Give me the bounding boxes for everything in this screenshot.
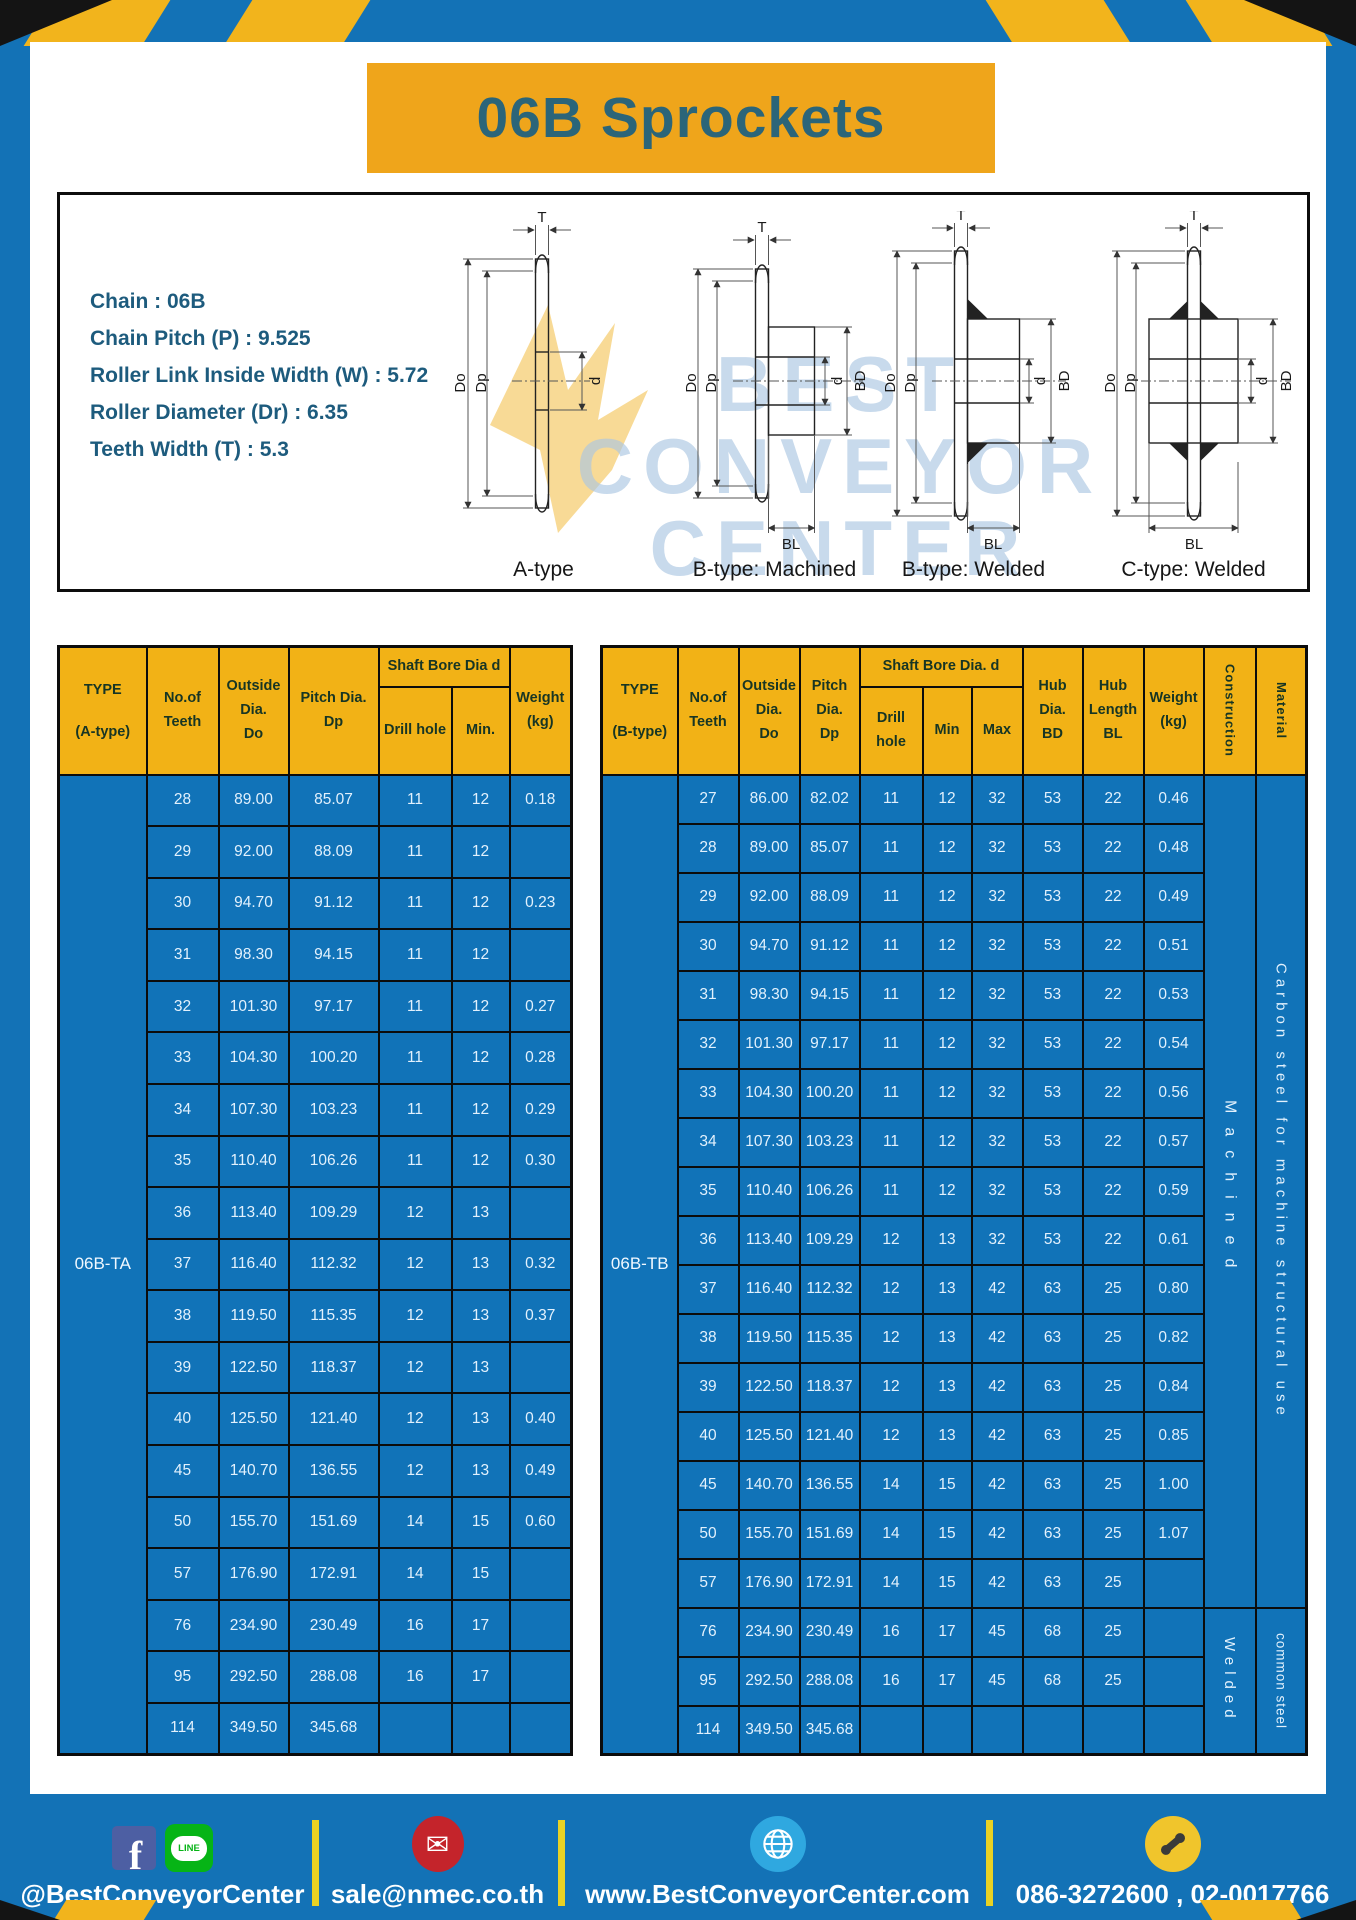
- dim-label-d: d: [829, 377, 846, 385]
- table-cell: 98.30: [739, 971, 800, 1020]
- social-icons: f LINE: [112, 1824, 213, 1872]
- table-cell: 349.50: [739, 1706, 800, 1755]
- table-cell: [1144, 1706, 1204, 1755]
- table-cell: 14: [379, 1497, 452, 1549]
- table-cell: 110.40: [739, 1167, 800, 1216]
- table-cell: [510, 1548, 572, 1600]
- table-cell: 53: [1023, 873, 1083, 922]
- table-row: 35110.40106.2611123253220.59: [602, 1167, 1307, 1216]
- col-header-hub-length: Hub Length BL: [1083, 647, 1144, 775]
- table-cell: 11: [379, 1084, 452, 1136]
- hazard-stripe: [986, 0, 1133, 46]
- drawing-label: C-type: Welded: [1086, 558, 1301, 582]
- material-cell: Carbon steel for machine structural use: [1256, 775, 1307, 1608]
- table-cell: 0.29: [510, 1084, 572, 1136]
- table-a-header-row: TYPE (A-type) No.of Teeth Outside Dia. D…: [59, 647, 572, 687]
- table-cell: 0.54: [1144, 1020, 1204, 1069]
- table-cell: 122.50: [219, 1342, 289, 1394]
- table-cell: 121.40: [800, 1412, 860, 1461]
- dim-label-t: T: [757, 219, 766, 236]
- table-cell: 82.02: [800, 775, 860, 824]
- table-cell: 11: [860, 873, 923, 922]
- table-cell: 63: [1023, 1559, 1083, 1608]
- table-cell: 63: [1023, 1510, 1083, 1559]
- table-cell: 12: [379, 1290, 452, 1342]
- table-cell: 14: [860, 1510, 923, 1559]
- table-cell: 32: [972, 1069, 1023, 1118]
- table-cell: 13: [452, 1342, 510, 1394]
- table-cell: 13: [923, 1265, 972, 1314]
- table-cell: 17: [923, 1657, 972, 1706]
- table-cell: 53: [1023, 1167, 1083, 1216]
- table-cell: 12: [452, 826, 510, 878]
- table-cell: 11: [860, 1118, 923, 1167]
- table-cell: 39: [147, 1342, 219, 1394]
- dim-label-do: Do: [452, 373, 469, 392]
- table-cell: 112.32: [289, 1239, 379, 1291]
- footer-phone-group: 086-3272600 , 02-0017766: [1000, 1816, 1345, 1910]
- table-cell: [1144, 1559, 1204, 1608]
- table-cell: 349.50: [219, 1703, 289, 1755]
- col-header-drill-hole: Drill hole: [860, 687, 923, 775]
- table-cell: 91.12: [289, 878, 379, 930]
- email-address: sale@nmec.co.th: [331, 1879, 544, 1910]
- col-header-min: Min.: [452, 687, 510, 775]
- dim-label-dp: Dp: [902, 373, 919, 392]
- hazard-stripe: [54, 1900, 156, 1920]
- table-cell: 13: [452, 1239, 510, 1291]
- table-cell: 94.15: [800, 971, 860, 1020]
- table-cell: 103.23: [289, 1084, 379, 1136]
- table-cell: 30: [678, 922, 739, 971]
- table-cell: 94.15: [289, 929, 379, 981]
- table-cell: 114: [678, 1706, 739, 1755]
- table-cell: 234.90: [739, 1608, 800, 1657]
- table-cell: [1023, 1706, 1083, 1755]
- table-cell: [510, 1187, 572, 1239]
- table-cell: 140.70: [219, 1445, 289, 1497]
- facebook-icon: f: [112, 1826, 156, 1870]
- table-cell: 12: [379, 1342, 452, 1394]
- table-cell: 0.30: [510, 1136, 572, 1188]
- col-header-teeth: No.of Teeth: [678, 647, 739, 775]
- table-cell: 22: [1083, 824, 1144, 873]
- table-cell: 94.70: [219, 878, 289, 930]
- table-cell: [1144, 1657, 1204, 1706]
- table-cell: 116.40: [219, 1239, 289, 1291]
- spec-tables: TYPE (A-type) No.of Teeth Outside Dia. D…: [57, 645, 1308, 1756]
- table-cell: 11: [860, 775, 923, 824]
- table-row: 34107.30103.2311123253220.57: [602, 1118, 1307, 1167]
- table-cell: 32: [147, 981, 219, 1033]
- col-header-max: Max: [972, 687, 1023, 775]
- dim-label-dp: Dp: [703, 373, 720, 392]
- title-banner: 06B Sprockets: [367, 63, 995, 173]
- table-cell: 345.68: [800, 1706, 860, 1755]
- table-cell: 42: [972, 1559, 1023, 1608]
- table-cell: 28: [678, 824, 739, 873]
- dim-label-bl: BL: [1185, 536, 1203, 553]
- table-cell: 0.60: [510, 1497, 572, 1549]
- table-cell: 12: [379, 1239, 452, 1291]
- table-cell: 38: [678, 1314, 739, 1363]
- table-cell: 34: [678, 1118, 739, 1167]
- table-cell: 22: [1083, 1118, 1144, 1167]
- table-cell: 32: [972, 873, 1023, 922]
- table-cell: 13: [452, 1393, 510, 1445]
- table-cell: 11: [860, 1069, 923, 1118]
- table-cell: [510, 1600, 572, 1652]
- dim-label-bl: BL: [782, 536, 800, 553]
- table-cell: 12: [923, 971, 972, 1020]
- table-cell: 88.09: [289, 826, 379, 878]
- table-cell: 12: [379, 1187, 452, 1239]
- line-badge: LINE: [171, 1836, 207, 1861]
- spec-line: Roller Diameter (Dr) : 6.35: [90, 394, 428, 431]
- table-cell: 114: [147, 1703, 219, 1755]
- table-row: 2889.0085.0711123253220.48: [602, 824, 1307, 873]
- table-cell: 1.07: [1144, 1510, 1204, 1559]
- table-cell: 0.48: [1144, 824, 1204, 873]
- table-cell: [972, 1706, 1023, 1755]
- col-header-teeth: No.of Teeth: [147, 647, 219, 775]
- col-header-material: Material: [1256, 647, 1307, 775]
- table-cell: 22: [1083, 1069, 1144, 1118]
- table-cell: 0.49: [1144, 873, 1204, 922]
- table-cell: 155.70: [219, 1497, 289, 1549]
- table-cell: 109.29: [800, 1216, 860, 1265]
- table-cell: 136.55: [289, 1445, 379, 1497]
- table-cell: 34: [147, 1084, 219, 1136]
- table-cell: 53: [1023, 824, 1083, 873]
- sprocket-drawing-b-machined: T Do Dp d BD BL B-type: Machined: [667, 211, 882, 582]
- col-header-shaft-bore: Shaft Bore Dia. d: [860, 647, 1023, 687]
- table-cell: 107.30: [219, 1084, 289, 1136]
- table-cell: 97.17: [289, 981, 379, 1033]
- table-cell: 12: [860, 1363, 923, 1412]
- table-cell: 12: [923, 1020, 972, 1069]
- table-cell: 172.91: [800, 1559, 860, 1608]
- table-cell: 12: [452, 981, 510, 1033]
- table-row: 50155.70151.6914154263251.07: [602, 1510, 1307, 1559]
- table-cell: 0.59: [1144, 1167, 1204, 1216]
- table-row: 76234.90230.491617456825Weldedcommon ste…: [602, 1608, 1307, 1657]
- table-cell: 12: [379, 1445, 452, 1497]
- footer-email-group: ✉ sale@nmec.co.th: [330, 1816, 545, 1910]
- dim-label-dp: Dp: [1122, 373, 1139, 392]
- table-cell: 0.28: [510, 1032, 572, 1084]
- table-cell: 22: [1083, 873, 1144, 922]
- table-row: 2992.0088.0911123253220.49: [602, 873, 1307, 922]
- table-cell: 11: [379, 1136, 452, 1188]
- dim-label-t: T: [956, 211, 965, 224]
- table-cell: 25: [1083, 1265, 1144, 1314]
- table-cell: 13: [923, 1412, 972, 1461]
- table-cell: [510, 929, 572, 981]
- table-cell: 30: [147, 878, 219, 930]
- content-page: 06B Sprockets BEST CONVEYOR CENTER Chain…: [30, 42, 1326, 1794]
- table-row: 114349.50345.68: [602, 1706, 1307, 1755]
- table-cell: 11: [379, 878, 452, 930]
- table-row: 39122.50118.3712134263250.84: [602, 1363, 1307, 1412]
- table-cell: 140.70: [739, 1461, 800, 1510]
- table-cell: 11: [860, 824, 923, 873]
- dim-label-bd: BD: [1278, 370, 1295, 391]
- table-cell: 113.40: [219, 1187, 289, 1239]
- table-cell: 57: [678, 1559, 739, 1608]
- col-header-type: TYPE (B-type): [602, 647, 678, 775]
- col-header-min: Min: [923, 687, 972, 775]
- sprocket-drawing-b-welded: T Do Dp d BD BL B-type: Welded: [866, 211, 1081, 582]
- table-cell: 32: [972, 824, 1023, 873]
- globe-icon: [750, 1816, 806, 1872]
- table-cell: 86.00: [739, 775, 800, 824]
- table-cell: 42: [972, 1265, 1023, 1314]
- table-cell: 0.82: [1144, 1314, 1204, 1363]
- dim-label-t: T: [537, 211, 546, 226]
- table-cell: 63: [1023, 1461, 1083, 1510]
- table-cell: 91.12: [800, 922, 860, 971]
- table-cell: 63: [1023, 1314, 1083, 1363]
- table-cell: [860, 1706, 923, 1755]
- table-cell: 122.50: [739, 1363, 800, 1412]
- table-cell: 94.70: [739, 922, 800, 971]
- spec-line: Teeth Width (T) : 5.3: [90, 431, 428, 468]
- table-cell: 53: [1023, 1118, 1083, 1167]
- dim-label-do: Do: [882, 373, 899, 392]
- table-cell: 25: [1083, 1461, 1144, 1510]
- table-cell: 33: [678, 1069, 739, 1118]
- table-cell: [510, 1651, 572, 1703]
- table-cell: 25: [1083, 1657, 1144, 1706]
- table-cell: 125.50: [739, 1412, 800, 1461]
- table-row: 3094.7091.1211123253220.51: [602, 922, 1307, 971]
- table-cell: 25: [1083, 1363, 1144, 1412]
- table-cell: 45: [972, 1657, 1023, 1706]
- table-cell: 176.90: [219, 1548, 289, 1600]
- table-cell: 37: [678, 1265, 739, 1314]
- table-cell: 35: [147, 1136, 219, 1188]
- table-cell: 22: [1083, 1167, 1144, 1216]
- table-cell: 42: [972, 1461, 1023, 1510]
- table-cell: 104.30: [219, 1032, 289, 1084]
- table-cell: 100.20: [800, 1069, 860, 1118]
- hazard-corner: [0, 0, 112, 46]
- col-header-weight: Weight (kg): [510, 647, 572, 775]
- table-cell: 172.91: [289, 1548, 379, 1600]
- table-cell: 15: [923, 1461, 972, 1510]
- table-cell: 13: [923, 1314, 972, 1363]
- table-row: 40125.50121.4012134263250.85: [602, 1412, 1307, 1461]
- table-cell: 22: [1083, 971, 1144, 1020]
- hazard-corner: [1244, 0, 1356, 46]
- table-cell: 345.68: [289, 1703, 379, 1755]
- table-cell: 32: [972, 1020, 1023, 1069]
- table-cell: 176.90: [739, 1559, 800, 1608]
- table-cell: 32: [972, 1216, 1023, 1265]
- table-cell: 15: [923, 1559, 972, 1608]
- table-cell: 63: [1023, 1412, 1083, 1461]
- table-row: 37116.40112.3212134263250.80: [602, 1265, 1307, 1314]
- table-cell: [452, 1703, 510, 1755]
- table-cell: 76: [678, 1608, 739, 1657]
- table-row: 32101.3097.1711123253220.54: [602, 1020, 1307, 1069]
- table-cell: 0.80: [1144, 1265, 1204, 1314]
- footer-website-group: www.BestConveyorCenter.com: [575, 1816, 980, 1910]
- table-b-header-row: TYPE (B-type) No.of Teeth Outside Dia. D…: [602, 647, 1307, 687]
- spec-line: Chain Pitch (P) : 9.525: [90, 320, 428, 357]
- table-cell: 155.70: [739, 1510, 800, 1559]
- table-cell: 11: [860, 971, 923, 1020]
- dim-label-dp: Dp: [473, 373, 490, 392]
- table-cell: 12: [860, 1216, 923, 1265]
- dim-label-bd: BD: [1056, 370, 1073, 391]
- col-header-type: TYPE (A-type): [59, 647, 147, 775]
- table-cell: 50: [147, 1497, 219, 1549]
- table-cell: 15: [452, 1497, 510, 1549]
- dim-label-bl: BL: [984, 536, 1002, 553]
- col-header-pitch-dia: Pitch Dia. Dp: [800, 647, 860, 775]
- table-cell: 12: [452, 929, 510, 981]
- col-header-pitch-dia: Pitch Dia. Dp: [289, 647, 379, 775]
- table-cell: 113.40: [739, 1216, 800, 1265]
- dim-label-do: Do: [683, 373, 700, 392]
- table-cell: 12: [860, 1314, 923, 1363]
- table-cell: 11: [860, 1020, 923, 1069]
- table-cell: 89.00: [219, 775, 289, 827]
- table-cell: 0.49: [510, 1445, 572, 1497]
- table-cell: 53: [1023, 971, 1083, 1020]
- col-header-hub-dia: Hub Dia. BD: [1023, 647, 1083, 775]
- table-cell: 95: [678, 1657, 739, 1706]
- table-cell: 107.30: [739, 1118, 800, 1167]
- table-row: 33104.30100.2011123253220.56: [602, 1069, 1307, 1118]
- table-cell: 0.84: [1144, 1363, 1204, 1412]
- table-cell: 22: [1083, 1020, 1144, 1069]
- dim-label-d: d: [1254, 377, 1271, 385]
- table-cell: 16: [379, 1600, 452, 1652]
- table-cell: 25: [1083, 1608, 1144, 1657]
- table-cell: 42: [972, 1510, 1023, 1559]
- table-cell: 22: [1083, 922, 1144, 971]
- footer-divider: [312, 1820, 319, 1906]
- table-cell: 53: [1023, 922, 1083, 971]
- table-cell: 13: [923, 1216, 972, 1265]
- spec-sheet-page: { "title": "06B Sprockets", "specs": [ "…: [0, 0, 1356, 1920]
- table-cell: 22: [1083, 1216, 1144, 1265]
- table-cell: 63: [1023, 1265, 1083, 1314]
- table-cell: 101.30: [739, 1020, 800, 1069]
- table-cell: 14: [860, 1461, 923, 1510]
- table-cell: 0.85: [1144, 1412, 1204, 1461]
- material-cell: common steel: [1256, 1608, 1307, 1755]
- table-cell: 136.55: [800, 1461, 860, 1510]
- table-cell: 25: [1083, 1314, 1144, 1363]
- table-cell: 12: [923, 1118, 972, 1167]
- table-cell: 0.37: [510, 1290, 572, 1342]
- footer-divider: [986, 1820, 993, 1906]
- dim-label-do: Do: [1102, 373, 1119, 392]
- table-cell: 13: [452, 1290, 510, 1342]
- table-cell: 32: [972, 922, 1023, 971]
- table-cell: 0.18: [510, 775, 572, 827]
- table-cell: 125.50: [219, 1393, 289, 1445]
- table-cell: 31: [147, 929, 219, 981]
- col-header-weight: Weight (kg): [1144, 647, 1204, 775]
- table-cell: 11: [379, 775, 452, 827]
- table-cell: 17: [452, 1600, 510, 1652]
- table-cell: 12: [452, 878, 510, 930]
- table-cell: 29: [147, 826, 219, 878]
- table-cell: 53: [1023, 1020, 1083, 1069]
- col-header-drill-hole: Drill hole: [379, 687, 452, 775]
- table-cell: 32: [972, 1167, 1023, 1216]
- table-row: 57176.90172.911415426325: [602, 1559, 1307, 1608]
- table-cell: 0.51: [1144, 922, 1204, 971]
- sprocket-drawing-c-welded: T Do Dp d BD BL C-type: Welded: [1086, 211, 1301, 582]
- table-cell: [510, 1342, 572, 1394]
- table-cell: [379, 1703, 452, 1755]
- table-cell: 11: [379, 981, 452, 1033]
- table-cell: 17: [923, 1608, 972, 1657]
- table-cell: 40: [678, 1412, 739, 1461]
- sprocket-table-b-type: TYPE (B-type) No.of Teeth Outside Dia. D…: [600, 645, 1308, 1756]
- table-cell: 288.08: [289, 1651, 379, 1703]
- diagram-box: BEST CONVEYOR CENTER Chain : 06B Chain P…: [57, 192, 1310, 592]
- table-cell: 12: [452, 775, 510, 827]
- table-cell: 13: [452, 1445, 510, 1497]
- sprocket-drawing-a-type: T Do Dp d A-type: [436, 211, 651, 582]
- dim-label-t: T: [1189, 211, 1198, 224]
- table-cell: 116.40: [739, 1265, 800, 1314]
- table-cell: 12: [923, 1167, 972, 1216]
- table-cell: 98.30: [219, 929, 289, 981]
- table-cell: 36: [147, 1187, 219, 1239]
- col-header-outside-dia: Outside Dia. Do: [219, 647, 289, 775]
- col-header-construction: Construction: [1204, 647, 1256, 775]
- table-cell: 0.46: [1144, 775, 1204, 824]
- table-cell: 14: [379, 1548, 452, 1600]
- table-row: 06B-TA2889.0085.0711120.18: [59, 775, 572, 827]
- table-cell: 16: [379, 1651, 452, 1703]
- construction-cell: Machined: [1204, 775, 1256, 1608]
- phone-icon: [1145, 1816, 1201, 1872]
- table-cell: 13: [452, 1187, 510, 1239]
- table-cell: 16: [860, 1657, 923, 1706]
- table-cell: 88.09: [800, 873, 860, 922]
- table-cell: [1083, 1706, 1144, 1755]
- table-cell: [510, 826, 572, 878]
- table-cell: 32: [972, 1118, 1023, 1167]
- table-cell: 115.35: [289, 1290, 379, 1342]
- hazard-corner: [1296, 1900, 1356, 1920]
- drawing-label: A-type: [436, 558, 651, 582]
- table-cell: 292.50: [219, 1651, 289, 1703]
- table-row: 3198.3094.1511123253220.53: [602, 971, 1307, 1020]
- table-cell: 53: [1023, 775, 1083, 824]
- table-cell: 33: [147, 1032, 219, 1084]
- table-cell: 0.27: [510, 981, 572, 1033]
- table-cell: 35: [678, 1167, 739, 1216]
- table-cell: 12: [860, 1412, 923, 1461]
- table-cell: 16: [860, 1608, 923, 1657]
- table-cell: 12: [379, 1393, 452, 1445]
- table-cell: 12: [452, 1084, 510, 1136]
- table-row: 45140.70136.5514154263251.00: [602, 1461, 1307, 1510]
- table-cell: 13: [923, 1363, 972, 1412]
- table-cell: 37: [147, 1239, 219, 1291]
- table-cell: 50: [678, 1510, 739, 1559]
